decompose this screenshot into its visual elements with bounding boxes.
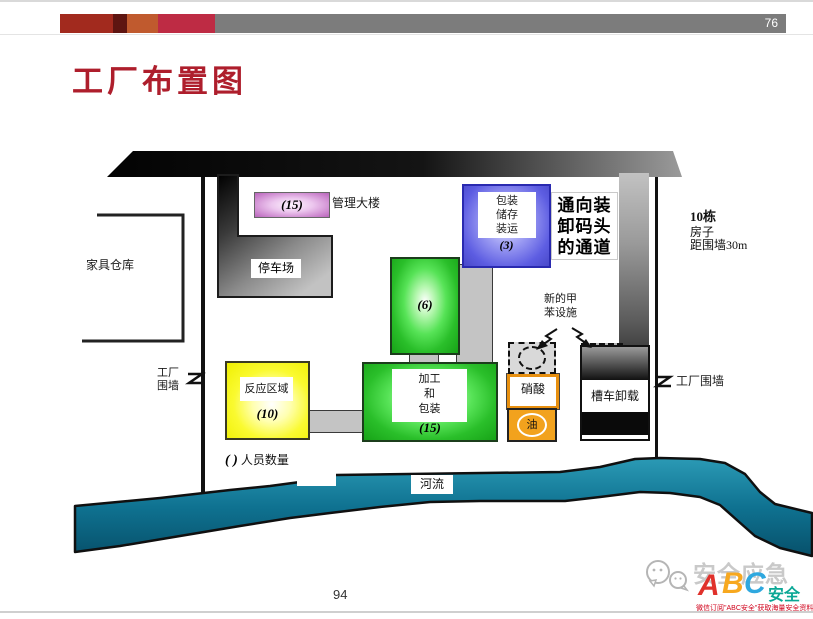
factory-wall-right-label: 工厂围墙 (676, 374, 724, 388)
logo-letter-b: B (722, 569, 744, 599)
chat-bubbles-icon (642, 558, 694, 594)
toluene-line-2: 苯设施 (544, 306, 577, 320)
bottom-border-line (0, 611, 813, 613)
slide-number-bottom: 94 (333, 587, 347, 602)
legend-parentheses: ( ) (225, 453, 238, 468)
arrow-to-right-dashed-box (572, 328, 592, 348)
annotation-marks (0, 0, 813, 619)
logo-letter-a: A (698, 571, 720, 601)
wall-left-line-2: 围墙 (157, 380, 179, 393)
wall-break-mark-left (188, 374, 203, 383)
personnel-count-legend: ( ) 人员数量 (225, 451, 289, 469)
slide: 76 工厂布置图 (0, 0, 813, 619)
wall-left-line-1: 工厂 (157, 367, 179, 380)
furniture-warehouse-label: 家具仓库 (86, 258, 134, 272)
wall-break-mark-right (656, 377, 671, 386)
arrow-to-left-dashed-box (536, 329, 557, 350)
abc-safety-logo: 安全应急 A B C 安全 微信订阅"ABC安全"获取海量安全资料 (640, 553, 813, 615)
logo-suffix-text: 安全 (768, 581, 800, 605)
legend-text: 人员数量 (241, 453, 289, 467)
factory-wall-left-label: 工厂 围墙 (157, 367, 179, 393)
toluene-line-1: 新的甲 (544, 292, 577, 306)
logo-letter-c: C (744, 569, 766, 599)
new-toluene-facility-label: 新的甲 苯设施 (544, 292, 577, 320)
